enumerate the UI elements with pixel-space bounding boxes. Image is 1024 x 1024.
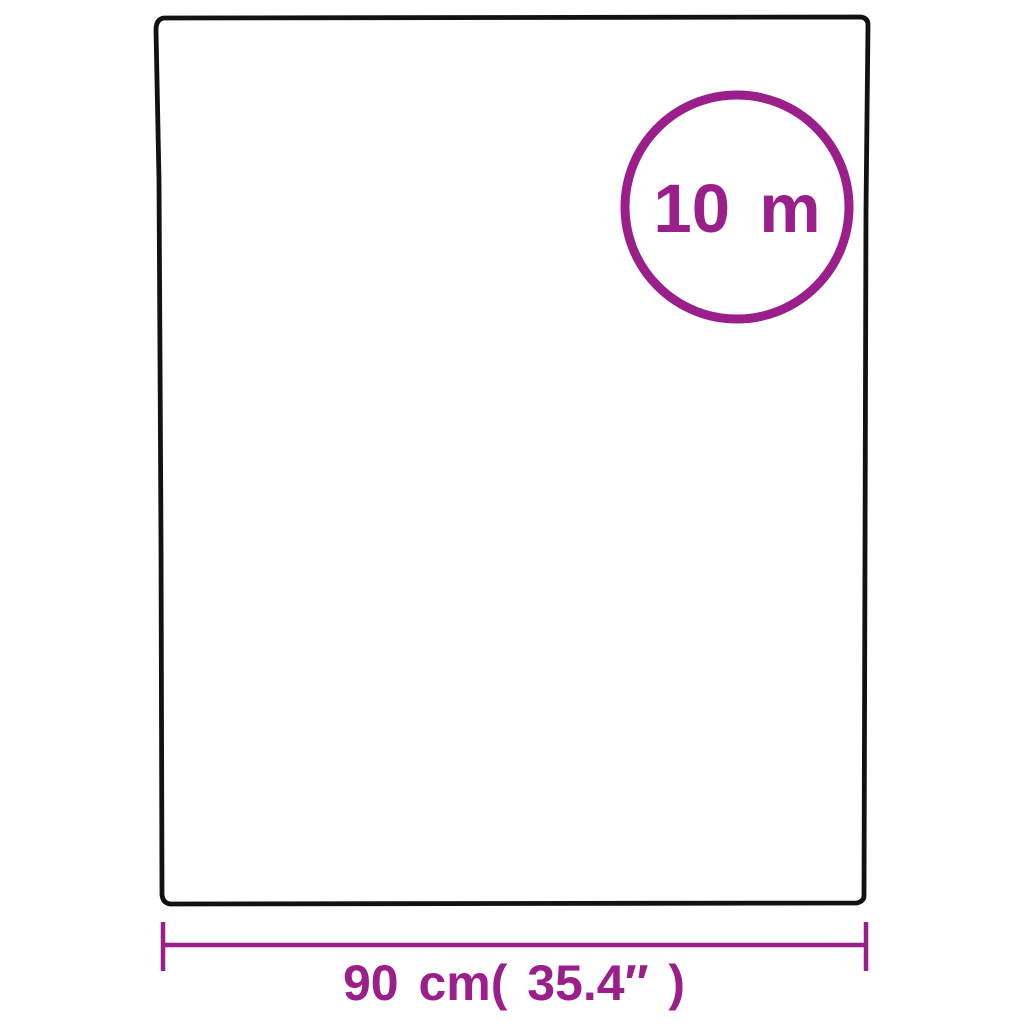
length-badge-label: 10 m xyxy=(653,170,820,247)
product-dimension-diagram: 10 m 90 cm( 35.4″ ) xyxy=(0,0,1024,1024)
width-dimension-label: 90 cm( 35.4″ ) xyxy=(343,955,685,1011)
diagram-canvas: 10 m 90 cm( 35.4″ ) xyxy=(0,0,1024,1024)
